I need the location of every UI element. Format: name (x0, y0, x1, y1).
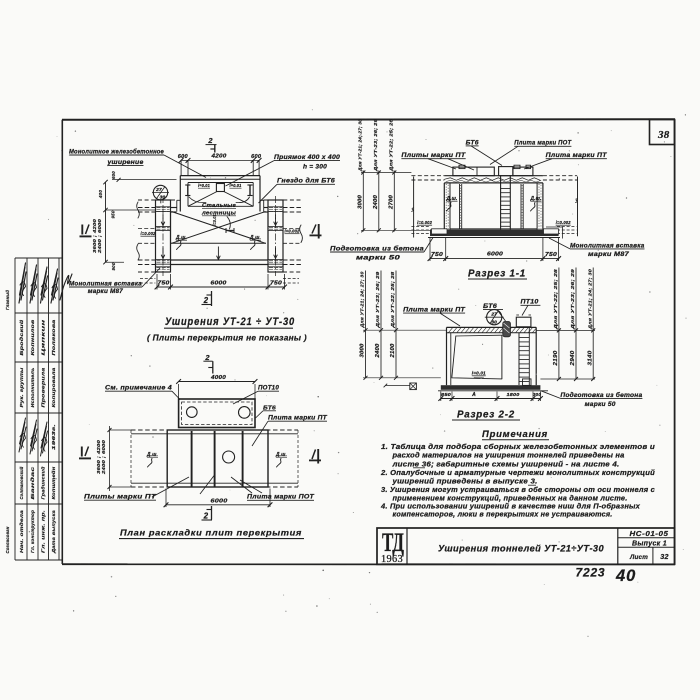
svg-text:Дата выпуска: Дата выпуска (51, 510, 56, 554)
svg-text:3600 ; 4200: 3600 ; 4200 (92, 219, 97, 253)
svg-text:Копнилов: Копнилов (30, 319, 35, 355)
svg-text:2940: 2940 (570, 350, 576, 366)
svg-text:Рук. группы: Рук. группы (19, 368, 24, 408)
svg-text:750: 750 (545, 252, 557, 258)
svg-text:Гнездо для БТ6: Гнездо для БТ6 (277, 179, 336, 185)
svg-text:Согласован: Согласован (5, 526, 10, 553)
svg-text:Для УТ-22; 25; 28: Для УТ-22; 25; 28 (389, 119, 394, 173)
svg-text:План раскладки плит перекры: План раскладки плит перекрытия (120, 527, 302, 537)
svg-text:600: 600 (111, 171, 116, 179)
svg-text:6000: 6000 (487, 252, 503, 258)
svg-text:Плиты марки ПТ: Плиты марки ПТ (84, 493, 157, 500)
svg-text:2190: 2190 (553, 350, 559, 366)
svg-text:3600 ; 4200: 3600 ; 4200 (96, 440, 101, 474)
svg-text:Главный: Главный (5, 290, 10, 310)
svg-text:ПТ10: ПТ10 (521, 300, 540, 306)
svg-text:1963: 1963 (381, 554, 403, 565)
svg-text:Для УТ-23; 26; 29: Для УТ-23; 26; 29 (570, 268, 575, 330)
svg-text:2. Опалубочные и арматурные че: 2. Опалубочные и арматурные чертежи моно… (380, 469, 656, 477)
svg-text:марки 50: марки 50 (356, 256, 401, 262)
svg-text:Солтановский: Солтановский (18, 467, 24, 500)
svg-text:Разрез 2-2: Разрез 2-2 (457, 409, 515, 420)
svg-text:2: 2 (207, 136, 213, 145)
svg-text:Копштейн: Копштейн (50, 466, 56, 499)
svg-text:Монолитная вставка: Монолитная вставка (69, 281, 142, 287)
svg-text:7223: 7223 (576, 566, 606, 580)
svg-text:600: 600 (251, 154, 261, 160)
svg-text:h = 300: h = 300 (303, 165, 327, 171)
svg-text:ПОТ10: ПОТ10 (258, 386, 279, 392)
svg-text:Исполнитель: Исполнитель (30, 367, 35, 407)
svg-text:Выпуск 1: Выпуск 1 (632, 540, 667, 547)
svg-text:Плита марки ПТ: Плита марки ПТ (268, 416, 328, 422)
svg-text:Для УТ-21; 24; 27; 30: Для УТ-21; 24; 27; 30 (587, 269, 592, 331)
svg-text:Приямок 400 х 400: Приямок 400 х 400 (274, 155, 341, 161)
svg-text:1. Таблица для подбора сборных: 1. Таблица для подбора сборных железобет… (381, 443, 656, 451)
svg-text:Монолитная вставка: Монолитная вставка (570, 243, 645, 249)
svg-text:3000: 3000 (360, 343, 366, 357)
svg-text:400: 400 (98, 190, 103, 200)
svg-text:Цяпкин: Цяпкин (41, 319, 46, 355)
svg-text:Для УТ-22; 25; 28: Для УТ-22; 25; 28 (390, 271, 395, 329)
svg-text:Для УТ-22; 25; 28: Для УТ-22; 25; 28 (553, 268, 558, 330)
svg-text:Бандас: Бандас (30, 466, 35, 499)
svg-text:4200: 4200 (210, 154, 226, 160)
svg-text:3. Уширения могут устраиваться: 3. Уширения могут устраиваться в обе сто… (381, 486, 655, 494)
svg-text:1963г.: 1963г. (51, 424, 57, 450)
svg-text:Лист: Лист (629, 554, 648, 561)
svg-text:Плита марки ПОТ: Плита марки ПОТ (247, 495, 315, 501)
svg-text:Полякова: Полякова (51, 319, 56, 355)
svg-text:2400: 2400 (375, 343, 381, 358)
svg-text:30: 30 (491, 319, 497, 325)
svg-text:марки 50: марки 50 (585, 402, 617, 408)
svg-text:применением конструкций, приве: применением конструкций, приведенных на … (393, 494, 628, 502)
svg-text:Подготовка из бетона: Подготовка из бетона (330, 245, 425, 252)
svg-text:Бродский: Бродский (18, 320, 24, 356)
svg-text:Плиты марки ПТ: Плиты марки ПТ (401, 153, 466, 159)
svg-text:Для УТ-23; 26; 29: Для УТ-23; 26; 29 (373, 119, 378, 173)
svg-text:БТ6: БТ6 (466, 139, 479, 146)
svg-text:Проверила: Проверила (41, 367, 46, 407)
svg-text:( Плиты перекрытия не показ: ( Плиты перекрытия не показаны ) (147, 332, 307, 342)
svg-text:6000: 6000 (211, 499, 228, 505)
svg-text:2400: 2400 (373, 195, 379, 210)
svg-text:4000: 4000 (210, 375, 226, 381)
svg-text:марки М87: марки М87 (588, 252, 630, 258)
svg-text:38: 38 (657, 129, 670, 141)
svg-text:2400 ; 6000: 2400 ; 6000 (97, 219, 102, 255)
svg-text:Плита марки ПТ: Плита марки ПТ (403, 308, 466, 314)
svg-text:БТ6: БТ6 (483, 303, 497, 310)
svg-text:i=0.01: i=0.01 (198, 183, 210, 188)
svg-text:750: 750 (158, 281, 170, 287)
svg-text:ТД: ТД (382, 528, 404, 557)
svg-text:2: 2 (203, 296, 209, 305)
svg-text:уширений приведены в выпуске 3: уширений приведены в выпуске 3. (391, 478, 537, 486)
svg-text:уширение: уширение (106, 160, 144, 166)
svg-text:Монолитное железобетонное: Монолитное железобетонное (69, 148, 164, 155)
svg-text:Плита марки ПОТ: Плита марки ПОТ (514, 141, 572, 147)
svg-text:1800: 1800 (507, 392, 520, 398)
svg-text:Гл. конструктор: Гл. конструктор (30, 510, 35, 553)
svg-text:Гл. инж. пр.: Гл. инж. пр. (41, 510, 46, 553)
svg-text:Градинский: Градинский (40, 467, 46, 500)
svg-text:i=0.01: i=0.01 (230, 183, 242, 188)
svg-text:40: 40 (615, 567, 636, 585)
svg-text:Уширения УТ-21 ÷ УТ-30: Уширения УТ-21 ÷ УТ-30 (165, 316, 295, 328)
svg-text:Плита марки ПТ: Плита марки ПТ (546, 153, 608, 159)
svg-text:Нач. отдела: Нач. отдела (19, 510, 24, 553)
svg-text:Подготовка из бетона: Подготовка из бетона (560, 392, 643, 399)
svg-text:листе 36; габаритные схемы уши: листе 36; габаритные схемы уширений - на… (391, 460, 619, 468)
svg-text:НС-01-05: НС-01-05 (630, 529, 670, 538)
svg-text:Для УТ-23; 26; 29: Для УТ-23; 26; 29 (375, 271, 380, 329)
svg-text:2: 2 (204, 353, 210, 362)
svg-text:Для УТ-21; 24; 27; 30: Для УТ-21; 24; 27; 30 (360, 271, 365, 329)
svg-text:32: 32 (660, 552, 668, 561)
svg-text:3140: 3140 (587, 350, 593, 365)
svg-text:4. При использовании уширений: 4. При использовании уширений в качестве… (380, 502, 641, 510)
svg-text:компенсаторов, люки в перекрыт: компенсаторов, люки в перекрытиях не уст… (393, 511, 613, 518)
svg-text:900: 900 (111, 262, 116, 270)
svg-text:3000: 3000 (358, 195, 364, 209)
svg-text:2700: 2700 (389, 195, 395, 210)
svg-text:2: 2 (203, 512, 209, 521)
svg-text:6000: 6000 (211, 280, 227, 286)
svg-text:Примечания: Примечания (482, 429, 548, 440)
svg-text:600: 600 (178, 154, 188, 160)
svg-text:Копировала: Копировала (51, 367, 56, 407)
svg-text:См. примечание 4: См. примечание 4 (105, 386, 173, 392)
svg-text:Уширения тоннелей УТ-21÷УТ-30: Уширения тоннелей УТ-21÷УТ-30 (438, 543, 604, 554)
svg-text:А: А (471, 392, 476, 398)
svg-text:750: 750 (270, 281, 282, 287)
svg-text:950: 950 (111, 210, 116, 218)
svg-text:расход материалов на уширения: расход материалов на уширения тоннелей п… (391, 452, 624, 460)
svg-text:2400 ; 6000: 2400 ; 6000 (101, 440, 106, 476)
svg-text:850: 850 (441, 392, 451, 398)
svg-text:2100: 2100 (390, 343, 396, 358)
svg-text:Для УТ-21; 24; 27; 30: Для УТ-21; 24; 27; 30 (358, 119, 363, 172)
svg-text:марки М87: марки М87 (88, 289, 124, 295)
svg-text:Разрез 1-1: Разрез 1-1 (468, 268, 526, 279)
svg-text:300: 300 (533, 392, 541, 397)
svg-text:27: 27 (490, 312, 497, 318)
svg-text:750: 750 (431, 252, 443, 258)
svg-text:27: 27 (155, 187, 162, 193)
